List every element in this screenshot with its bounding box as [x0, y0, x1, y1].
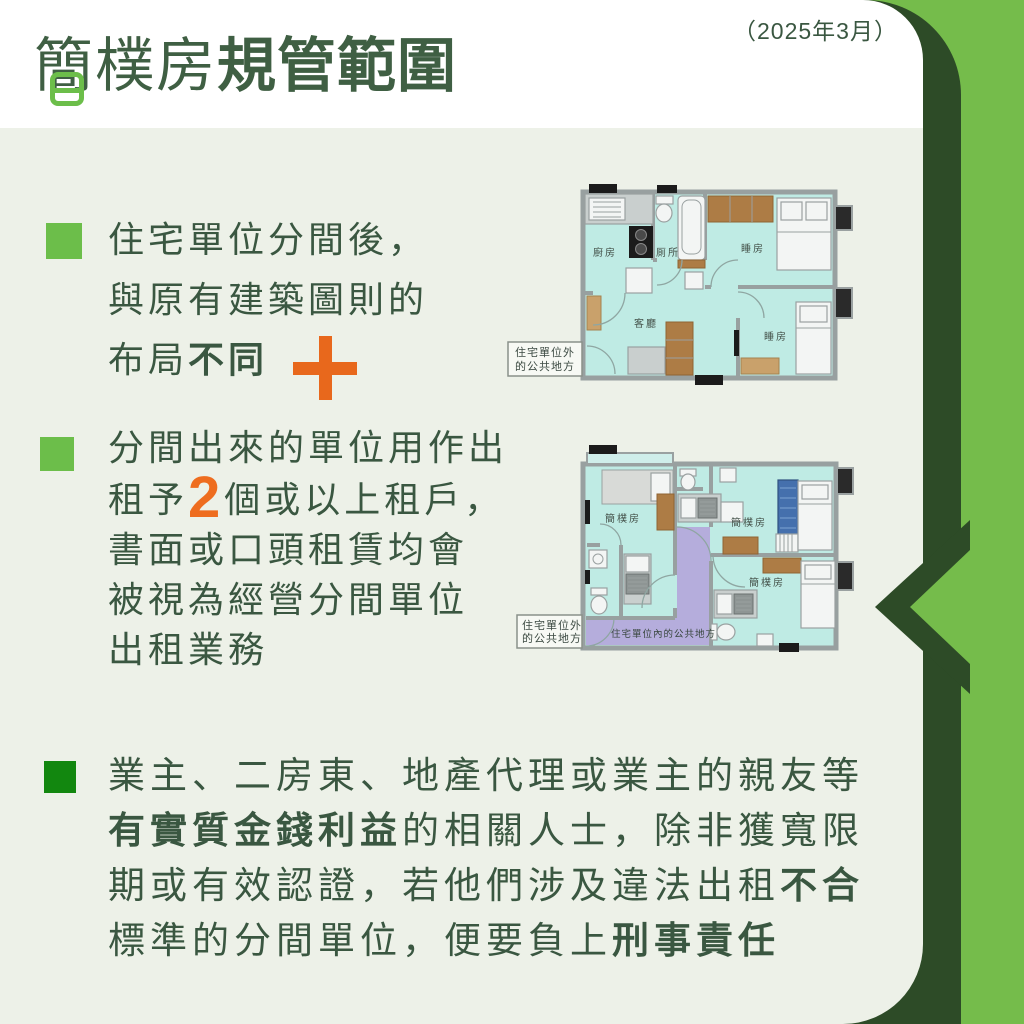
room-label-room2: 簡樸房 [731, 516, 767, 529]
bullet-3-normal: 標準的分間單位，便要負上 [108, 920, 612, 961]
room-label-bedroom-bottom: 睡房 [764, 330, 788, 343]
bullet-3-normal: 業主、二房東、地產代理或業主的親友等 [108, 755, 864, 796]
date-label: （2025年3月） [733, 12, 898, 46]
bullet-square-icon [46, 223, 82, 259]
bullet-1-bold: 不同 [188, 339, 268, 380]
room-label-room3: 簡樸房 [749, 576, 785, 589]
floorplan-original-unit-image: 廚房 厠所 睡房 客廳 睡房 住宅單位外 的公共地方 [505, 182, 855, 392]
outside-common-label-box: 住宅單位外 的公共地方 [517, 615, 582, 648]
room-label-room1: 簡樸房 [605, 512, 641, 525]
bullet-square-icon [44, 761, 76, 793]
bullet-2-number-highlight: 2 [188, 465, 224, 530]
logo-day-icon [50, 72, 84, 106]
bullet-square-icon [40, 437, 74, 471]
bullet-3-text: 業主、二房東、地產代理或業主的親友等 有實質金錢利益的相關人士，除非獲寬限 期或… [108, 748, 932, 968]
floorplan-subdivided-unit-image: 簡樸房 簡樸房 簡樸房 住宅單位內的公共地方 住宅單位外 的公共地方 [505, 442, 855, 657]
chevron-notch-decoration [860, 500, 1024, 714]
bullet-3-bold: 有實質金錢利益 [108, 810, 402, 851]
bullet-3-bold: 不合 [780, 865, 864, 906]
room-label-bedroom-top: 睡房 [741, 242, 765, 255]
outside-common-label-line1: 住宅單位外 [515, 345, 575, 359]
outside-common-label-line2: 的公共地方 [522, 631, 582, 645]
room-label-kitchen: 廚房 [593, 246, 617, 259]
room-label-living: 客廳 [634, 317, 658, 330]
inside-common-label: 住宅單位內的公共地方 [611, 628, 716, 640]
plus-icon [293, 336, 357, 400]
outside-common-label-line1: 住宅單位外 [522, 618, 582, 632]
outside-common-label-line2: 的公共地方 [515, 359, 575, 373]
title-bold-part: 規管範圍 [217, 33, 457, 99]
outside-common-label-box: 住宅單位外 的公共地方 [508, 342, 582, 376]
infographic-canvas: （2025年3月） 簡樸房規管範圍 住宅單位分間後， 與原有建築圖則的 布局不同… [0, 0, 1024, 1024]
page-title: 簡樸房規管範圍 [34, 30, 457, 102]
room-label-toilet: 厠所 [656, 247, 680, 259]
bullet-3-bold: 刑事責任 [612, 920, 780, 961]
